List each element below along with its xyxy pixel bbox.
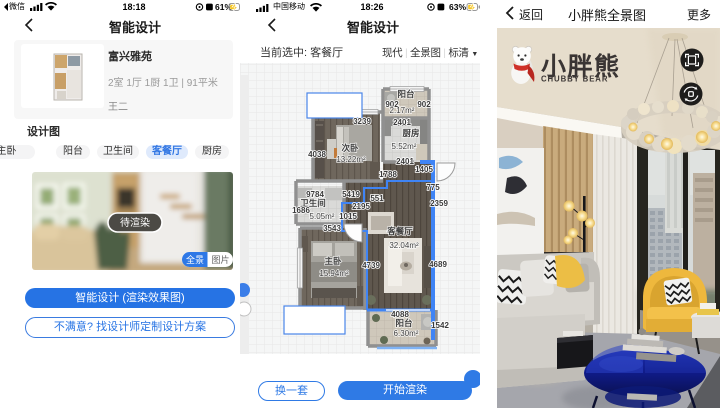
svg-text:3239: 3239: [353, 117, 371, 126]
svg-text:775: 775: [426, 183, 440, 192]
svg-text:主卧: 主卧: [324, 256, 342, 266]
svg-text:1542: 1542: [431, 321, 449, 330]
svg-text:2401: 2401: [396, 157, 414, 166]
svg-text:5.52m²: 5.52m²: [392, 142, 417, 151]
svg-text:2401: 2401: [393, 118, 411, 127]
svg-text:2195: 2195: [352, 202, 370, 211]
svg-text:图片: 图片: [211, 254, 229, 265]
svg-text:2.17m²: 2.17m²: [390, 106, 415, 115]
svg-text:13.22m²: 13.22m²: [336, 155, 366, 164]
svg-text:3543: 3543: [323, 224, 341, 233]
svg-text:阳台: 阳台: [395, 318, 413, 328]
svg-text:1015: 1015: [339, 212, 357, 221]
svg-text:63%: 63%: [449, 2, 466, 12]
svg-text:厨房: 厨房: [402, 128, 419, 138]
svg-text:次卧: 次卧: [341, 143, 359, 153]
svg-text:4038: 4038: [308, 150, 326, 159]
svg-text:2359: 2359: [430, 199, 448, 208]
svg-text:5.05m²: 5.05m²: [310, 212, 335, 221]
svg-text:551: 551: [370, 194, 384, 203]
svg-text:CHUBBY BEAR: CHUBBY BEAR: [541, 75, 608, 84]
svg-text:5419: 5419: [342, 190, 360, 199]
svg-text:1788: 1788: [379, 170, 397, 179]
svg-text:32.04m²: 32.04m²: [389, 241, 419, 250]
svg-text:客餐厅: 客餐厅: [386, 226, 413, 236]
svg-text:1686: 1686: [292, 206, 310, 215]
svg-text:待渲染: 待渲染: [120, 216, 150, 229]
svg-text:阳台: 阳台: [397, 89, 415, 99]
svg-text:6.30m²: 6.30m²: [394, 329, 419, 338]
svg-text:902: 902: [417, 100, 431, 109]
svg-text:1405: 1405: [415, 165, 433, 174]
svg-text:4739: 4739: [362, 261, 380, 270]
svg-text:全景: 全景: [186, 254, 204, 265]
svg-text:15.94m²: 15.94m²: [319, 269, 349, 278]
svg-text:4689: 4689: [429, 260, 447, 269]
